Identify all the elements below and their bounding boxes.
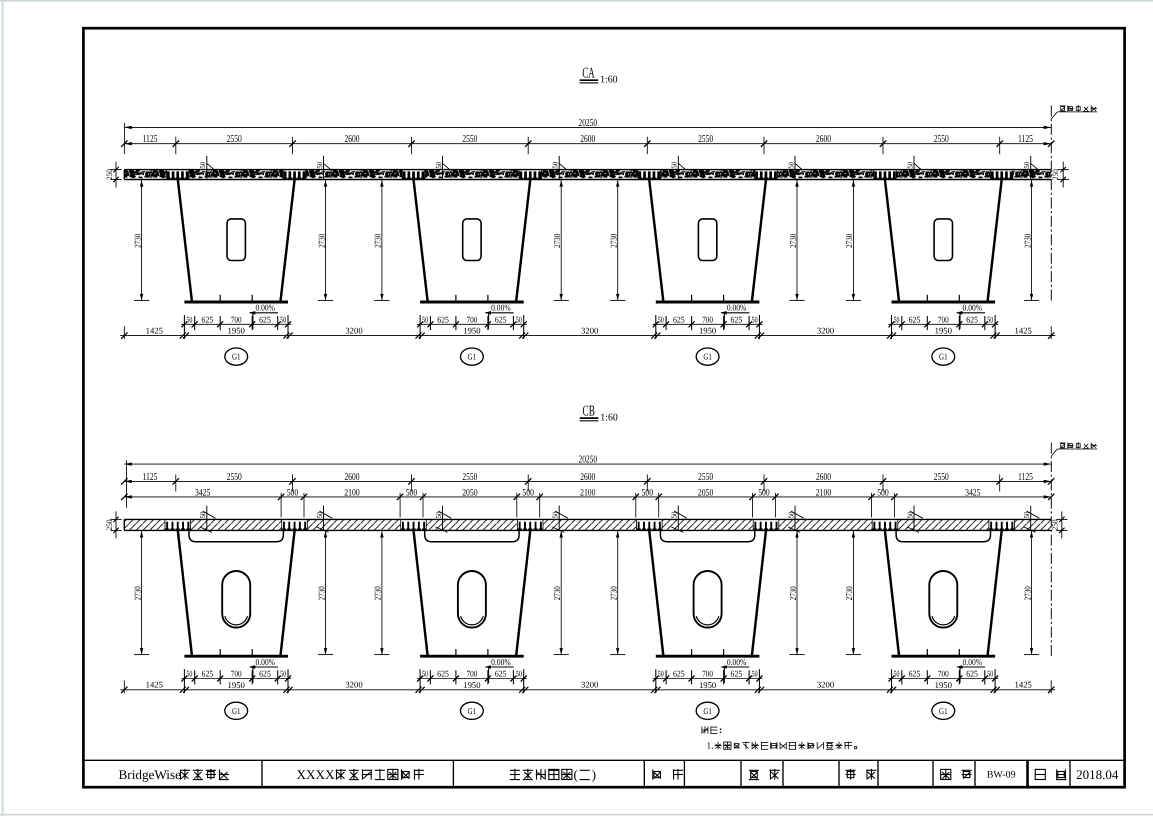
svg-text:2730: 2730 [609, 586, 619, 601]
svg-text:625: 625 [673, 315, 685, 325]
svg-text:625: 625 [731, 669, 743, 679]
svg-text:BridgeWise: BridgeWise [119, 767, 182, 782]
svg-text:1425: 1425 [146, 326, 163, 336]
svg-text:625: 625 [966, 669, 978, 679]
svg-text:50: 50 [670, 511, 679, 518]
svg-text:2600: 2600 [580, 134, 595, 145]
svg-text:1950: 1950 [463, 680, 481, 690]
svg-text:2730: 2730 [316, 233, 326, 248]
svg-text:50: 50 [987, 669, 993, 679]
svg-text:1950: 1950 [935, 680, 953, 690]
svg-text:625: 625 [259, 669, 271, 679]
svg-text:50: 50 [198, 511, 207, 518]
svg-text:0.00%: 0.00% [963, 303, 983, 313]
svg-text:700: 700 [467, 315, 478, 325]
svg-text:3425: 3425 [965, 487, 980, 498]
svg-text:2730: 2730 [552, 586, 562, 601]
svg-text:50: 50 [186, 669, 192, 679]
svg-text:50: 50 [198, 162, 207, 169]
svg-text:250: 250 [1051, 169, 1060, 180]
svg-text:2550: 2550 [698, 134, 713, 145]
svg-text:700: 700 [702, 669, 713, 679]
svg-text:50: 50 [551, 511, 560, 518]
svg-text:2550: 2550 [934, 472, 949, 483]
svg-text:G1: G1 [939, 706, 948, 716]
svg-text:2730: 2730 [788, 233, 798, 248]
svg-text:625: 625 [909, 669, 921, 679]
svg-text:G1: G1 [703, 706, 712, 716]
svg-text:0.00%: 0.00% [491, 657, 511, 667]
svg-text:2600: 2600 [345, 134, 360, 145]
svg-text:CB: CB [583, 403, 595, 419]
svg-text:700: 700 [938, 315, 949, 325]
svg-text:50: 50 [905, 511, 914, 518]
svg-text:500: 500 [877, 487, 889, 498]
svg-text:250: 250 [105, 519, 114, 530]
svg-text:1950: 1950 [228, 326, 246, 336]
svg-text:1950: 1950 [699, 680, 717, 690]
svg-text:2100: 2100 [580, 487, 595, 498]
svg-text:3200: 3200 [581, 680, 599, 690]
svg-text:50: 50 [1022, 162, 1031, 169]
svg-text:250: 250 [105, 169, 114, 180]
svg-text:2730: 2730 [844, 233, 854, 248]
svg-text:0.00%: 0.00% [963, 657, 983, 667]
svg-text:1425: 1425 [1015, 326, 1032, 336]
svg-text:2600: 2600 [580, 472, 595, 483]
svg-text:2100: 2100 [344, 487, 359, 498]
svg-text:500: 500 [287, 487, 299, 498]
svg-text:50: 50 [186, 315, 192, 325]
svg-text:20250: 20250 [579, 455, 598, 466]
svg-text:625: 625 [202, 669, 214, 679]
svg-text:0.00%: 0.00% [255, 657, 275, 667]
svg-text:1125: 1125 [1018, 134, 1033, 145]
svg-text:500: 500 [642, 487, 654, 498]
svg-text:50: 50 [786, 162, 795, 169]
svg-text:0.00%: 0.00% [727, 657, 747, 667]
svg-text:50: 50 [315, 511, 324, 518]
svg-text:625: 625 [437, 315, 449, 325]
svg-text:G1: G1 [232, 352, 241, 362]
svg-text:700: 700 [938, 669, 949, 679]
svg-text:2550: 2550 [227, 472, 242, 483]
svg-text:1950: 1950 [228, 680, 246, 690]
svg-text:50: 50 [987, 315, 993, 325]
svg-text:50: 50 [905, 162, 914, 169]
svg-text:625: 625 [202, 315, 214, 325]
svg-text:2050: 2050 [698, 487, 713, 498]
svg-text:625: 625 [966, 315, 978, 325]
svg-text:50: 50 [551, 162, 560, 169]
svg-text:2600: 2600 [816, 472, 831, 483]
svg-text:700: 700 [231, 315, 242, 325]
svg-text:3200: 3200 [581, 326, 599, 336]
svg-text:700: 700 [702, 315, 713, 325]
svg-text:50: 50 [280, 669, 286, 679]
svg-text:50: 50 [658, 315, 664, 325]
svg-text:G1: G1 [939, 352, 948, 362]
svg-text:3200: 3200 [345, 326, 363, 336]
svg-text:50: 50 [422, 669, 428, 679]
svg-text:2730: 2730 [132, 233, 142, 248]
svg-text:1425: 1425 [1015, 680, 1032, 690]
svg-text:2730: 2730 [132, 586, 142, 601]
svg-text:50: 50 [894, 669, 900, 679]
svg-text:2730: 2730 [609, 233, 619, 248]
svg-text:50: 50 [786, 511, 795, 518]
svg-text:625: 625 [673, 669, 685, 679]
svg-text:1125: 1125 [1018, 472, 1033, 483]
svg-text:1.: 1. [707, 742, 714, 752]
svg-text:BW-09: BW-09 [987, 770, 1016, 781]
svg-text:1950: 1950 [935, 326, 953, 336]
svg-text:625: 625 [259, 315, 271, 325]
svg-text:0.00%: 0.00% [255, 303, 275, 313]
svg-text:G1: G1 [703, 352, 712, 362]
svg-text:625: 625 [909, 315, 921, 325]
svg-text:625: 625 [731, 315, 743, 325]
svg-text:250: 250 [1051, 519, 1060, 530]
svg-text:CA: CA [582, 66, 594, 82]
svg-text:50: 50 [894, 315, 900, 325]
svg-text:2730: 2730 [788, 586, 798, 601]
svg-text:3425: 3425 [195, 487, 210, 498]
svg-text:2050: 2050 [462, 487, 477, 498]
svg-text:2550: 2550 [934, 134, 949, 145]
svg-text:2550: 2550 [698, 472, 713, 483]
svg-text:XXXX: XXXX [297, 767, 336, 782]
svg-text:700: 700 [231, 669, 242, 679]
svg-text:2730: 2730 [844, 586, 854, 601]
svg-text:2600: 2600 [816, 134, 831, 145]
svg-text:50: 50 [658, 669, 664, 679]
svg-text:2730: 2730 [552, 233, 562, 248]
svg-text:50: 50 [752, 669, 758, 679]
svg-text:2730: 2730 [373, 586, 383, 601]
svg-text:50: 50 [516, 315, 522, 325]
svg-text:500: 500 [406, 487, 418, 498]
svg-text:1425: 1425 [146, 680, 163, 690]
svg-text:50: 50 [516, 669, 522, 679]
svg-text:2730: 2730 [373, 233, 383, 248]
svg-text:1:60: 1:60 [600, 413, 618, 424]
svg-text:50: 50 [434, 162, 443, 169]
svg-text:G1: G1 [232, 706, 241, 716]
svg-text:500: 500 [758, 487, 770, 498]
svg-text:0.00%: 0.00% [727, 303, 747, 313]
svg-text:G1: G1 [468, 706, 477, 716]
svg-text:1950: 1950 [699, 326, 717, 336]
svg-text:50: 50 [434, 511, 443, 518]
svg-text:2100: 2100 [816, 487, 831, 498]
svg-text:500: 500 [522, 487, 534, 498]
svg-text:2730: 2730 [1022, 586, 1032, 601]
svg-text:2550: 2550 [462, 134, 477, 145]
svg-text:G1: G1 [468, 352, 477, 362]
svg-text:2550: 2550 [227, 134, 242, 145]
svg-text:625: 625 [437, 669, 449, 679]
svg-text:1125: 1125 [143, 134, 158, 145]
svg-text:3200: 3200 [817, 680, 835, 690]
svg-text:2018.04: 2018.04 [1076, 767, 1119, 782]
svg-text:50: 50 [315, 162, 324, 169]
svg-text:3200: 3200 [817, 326, 835, 336]
svg-text:1:60: 1:60 [600, 75, 618, 86]
svg-text:2600: 2600 [345, 472, 360, 483]
svg-text:2730: 2730 [1022, 233, 1032, 248]
svg-text:700: 700 [467, 669, 478, 679]
svg-text:1950: 1950 [463, 326, 481, 336]
svg-text:50: 50 [752, 315, 758, 325]
svg-text:2550: 2550 [462, 472, 477, 483]
svg-text:0.00%: 0.00% [491, 303, 511, 313]
svg-text:): ) [592, 767, 596, 782]
svg-text:50: 50 [1022, 511, 1031, 518]
svg-text:625: 625 [495, 669, 507, 679]
svg-text:625: 625 [495, 315, 507, 325]
svg-text:20250: 20250 [579, 118, 598, 129]
svg-text:50: 50 [670, 162, 679, 169]
svg-text:50: 50 [422, 315, 428, 325]
svg-text:2730: 2730 [316, 586, 326, 601]
svg-text:50: 50 [280, 315, 286, 325]
svg-text:1125: 1125 [143, 472, 158, 483]
svg-text:(: ( [574, 767, 578, 782]
svg-text:3200: 3200 [345, 680, 363, 690]
